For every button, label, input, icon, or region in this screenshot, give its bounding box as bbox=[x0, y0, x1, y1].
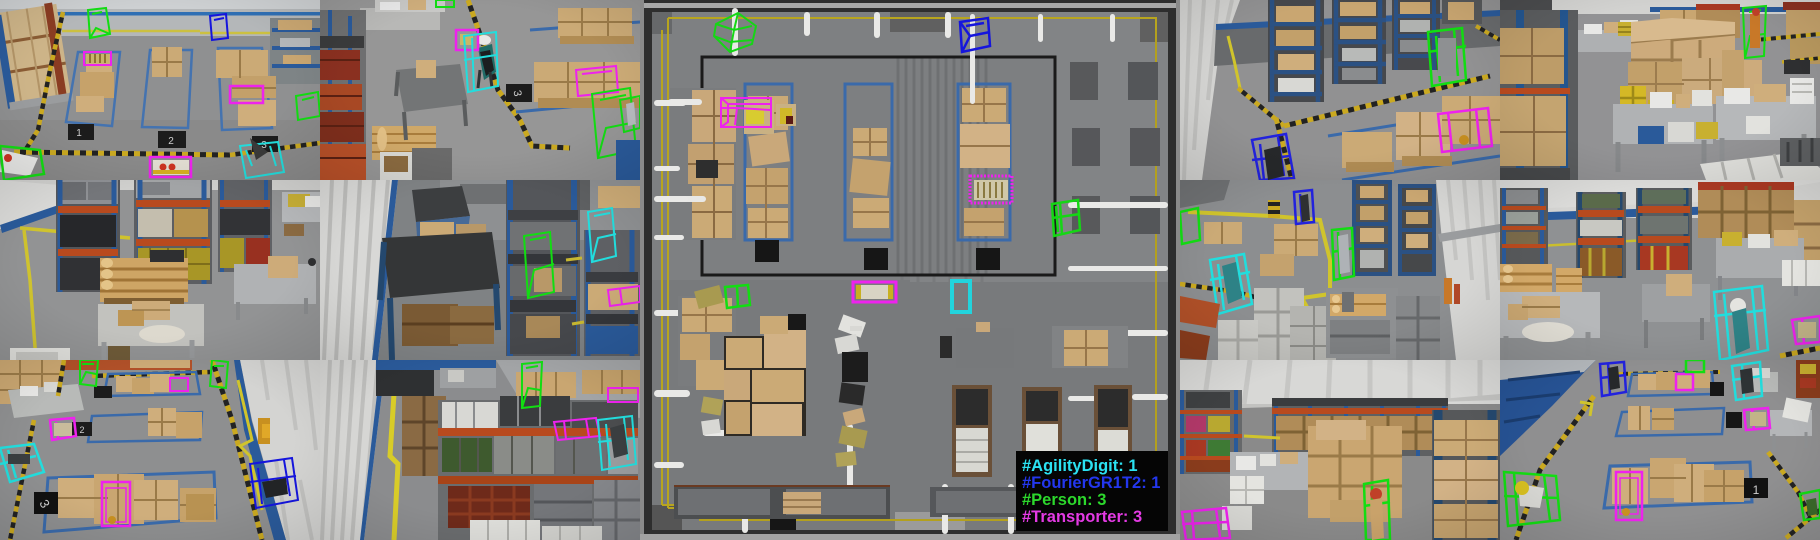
svg-text:#Person: 3: #Person: 3 bbox=[1022, 491, 1106, 509]
svg-text:2: 2 bbox=[168, 136, 174, 147]
svg-text:#Transporter: 3: #Transporter: 3 bbox=[1022, 508, 1142, 526]
svg-text:1: 1 bbox=[76, 128, 82, 139]
svg-text:#AgilityDigit: 1: #AgilityDigit: 1 bbox=[1022, 457, 1138, 475]
svg-text:#FourierGR1T2: 1: #FourierGR1T2: 1 bbox=[1022, 474, 1160, 492]
svg-text:2: 2 bbox=[79, 425, 84, 435]
svg-text:1: 1 bbox=[1753, 483, 1760, 497]
